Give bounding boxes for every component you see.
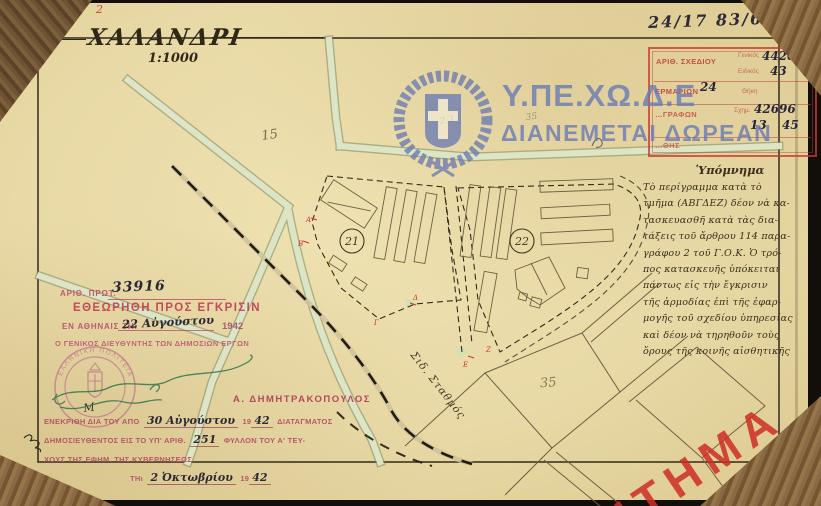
decree-text: ΕΝΕΚΡΙΘΗ ΔΙΑ ΤΟΥ ΑΠΟ [44,417,140,426]
block-22-label: 22 [514,235,529,248]
decree-text: ΦΥΛΛΟΝ ΤΟΥ Α' ΤΕΥ- [224,436,306,445]
watermark-agency: Υ.ΠΕ.ΧΩ.Δ.Ε [502,78,696,114]
cross-icon [428,111,458,121]
protocol-label: ΑΡΙΘ. ΠΡΩΤ. [60,289,117,298]
approval-date-underline [118,330,214,331]
corner-letter-z: Ζ [485,346,491,354]
memo-line: τμῆμα (ΑΒΓΔΕΖ) δέον νὰ κα- [643,196,817,212]
decree-text: ΧΟΥΣ ΤΗΣ ΕΦΗΜ. ΤΗΣ ΚΥΒΕΡΝΗΣΕΩΣ [44,455,192,464]
archive-row2-field: Θήκη [742,88,758,95]
watermark-distribution: ΔΙΑΝΕΜΕΤΑΙ ΔΩΡΕΑΝ [501,120,772,147]
decree-text: 19 [240,474,249,483]
protocol-number: 33916 [112,278,166,296]
corner-letter-b: Β [297,240,303,248]
decree-handwritten-number: 251 [190,433,219,447]
scanned-town-plan: Α Β Γ Δ Ε Ζ 21 22 15 35 Σιδ. Σταθμός 2,3… [0,0,821,506]
block-21-label: 21 [344,235,359,248]
director-title: Ο ΓΕΝΙΚΟΣ ΔΙΕΥΘΥΝΤΗΣ ΤΩΝ ΔΗΜΟΣΙΩΝ ΕΡΓΩΝ [55,339,249,348]
archive-f3-name: Σχημ. [734,107,751,114]
corner-note: 2 [96,3,103,16]
stamp-crown-icon [90,363,100,370]
corner-letter-g: Γ [373,319,380,327]
decree-text: ΤΗι [130,474,143,483]
street-name-label: Σιδ. Σταθμός [407,349,468,422]
memo-line: μογῆς τοῦ σχεδίου ὑπηρεσίας [643,311,817,327]
approval-year: 1942 [222,321,243,332]
decree-text: ΔΗΜΟΣΙΕΥΘΕΝΤΟΣ ΕΙΣ ΤΟ ΥΠ' ΑΡΙΘ. [44,436,186,445]
protocol-underline [108,299,226,300]
shelf-numbers: 24/17 83/6 [648,9,764,32]
memo-line: τασκευασθῆ κατὰ τὰς δια- [643,213,817,229]
decree-line-3: ΧΟΥΣ ΤΗΣ ΕΦΗΜ. ΤΗΣ ΚΥΒΕΡΝΗΣΕΩΣ [44,449,344,467]
green-mark [455,345,470,357]
memo-line: τάξεις τοῦ ἄρθρου 114 παρα- [643,229,817,245]
archive-f1-name: Γενικός [738,52,759,59]
archive-f3-value: 42696 [754,102,796,116]
memo-title: Ὑπόμνημα [643,163,817,177]
decree-text: 19 [242,417,251,426]
block-15-label: 15 [260,127,278,144]
archive-row1-label: ΑΡΙΘ. ΣΧΕΔΙΟΥ [656,57,716,66]
approval-line: ΕΘΕΩΡΗΘΗ ΠΡΟΣ ΕΓΚΡΙΣΙΝ [73,302,261,314]
archive-f2-value: 43 [770,64,787,78]
memo-note: Ὑπόμνημα Τὸ περίγραμμα κατὰ τὸ τμῆμα (ΑΒ… [643,163,817,360]
decree-handwritten-date: 30 Αὐγούστου [144,414,238,428]
memo-line: τῆς ἁρμοδίας ἐπὶ τῆς ἐφαρ- [643,295,817,311]
decree-line-2: ΔΗΜΟΣΙΕΥΘΕΝΤΟΣ ΕΙΣ ΤΟ ΥΠ' ΑΡΙΘ. 251 ΦΥΛΛ… [44,430,344,448]
memo-line: γράφου 2 τοῦ Γ.Ο.Κ. Ὁ τρό- [643,246,817,262]
decree-stamp: ΕΝΕΚΡΙΘΗ ΔΙΑ ΤΟΥ ΑΠΟ 30 Αὐγούστου 1942 Δ… [44,411,344,487]
planned-street-edge [444,187,462,352]
memo-line: ὅρους τῆς κοινῆς αἰσθητικῆς [643,344,817,360]
corner-letter-a: Α [305,216,311,224]
block-22-outline [458,184,641,352]
decree-handwritten-year: 42 [249,471,270,485]
archive-f5-value: 45 [782,118,799,132]
buildings [321,179,614,333]
title-rule-right [212,37,324,38]
wreath-stems [432,162,454,176]
decree-line-4: ΤΗι 2 Ὀκτωβρίου 1942 [44,468,344,486]
archive-f2-name: Ειδικός [738,68,759,75]
decree-text: ΔΙΑΤΑΓΜΑΤΟΣ [277,417,332,426]
block-22-outer-curve [505,176,649,362]
archive-row2-value: 24 [700,80,717,94]
decree-line-1: ΕΝΕΚΡΙΘΗ ΔΙΑ ΤΟΥ ΑΠΟ 30 Αὐγούστου 1942 Δ… [44,411,344,429]
memo-line: πάντως εἰς τὴν ἔγκρισιν [643,278,817,294]
signature-name: Α. ΔΗΜΗΤΡΑΚΟΠΟΥΛΟΣ [233,394,371,405]
map-scale: 1:1000 [148,51,198,66]
decree-handwritten-year: 42 [251,414,272,428]
memo-line: καὶ δέον νὰ τηρηθοῦν τοὺς [643,328,817,344]
block-35-label: 35 [539,375,557,391]
decree-handwritten-date: 2 Ὀκτωβρίου [147,471,235,485]
corner-letter-d: Δ [412,294,418,302]
memo-line: πος κατασκευῆς ὑπόκειται [643,262,817,278]
corner-letter-e: Ε [462,361,468,369]
stamp-cross-icon [89,374,101,392]
laurel-wreath-emblem [390,68,500,178]
memo-line: Τὸ περίγραμμα κατὰ τὸ [643,180,817,196]
